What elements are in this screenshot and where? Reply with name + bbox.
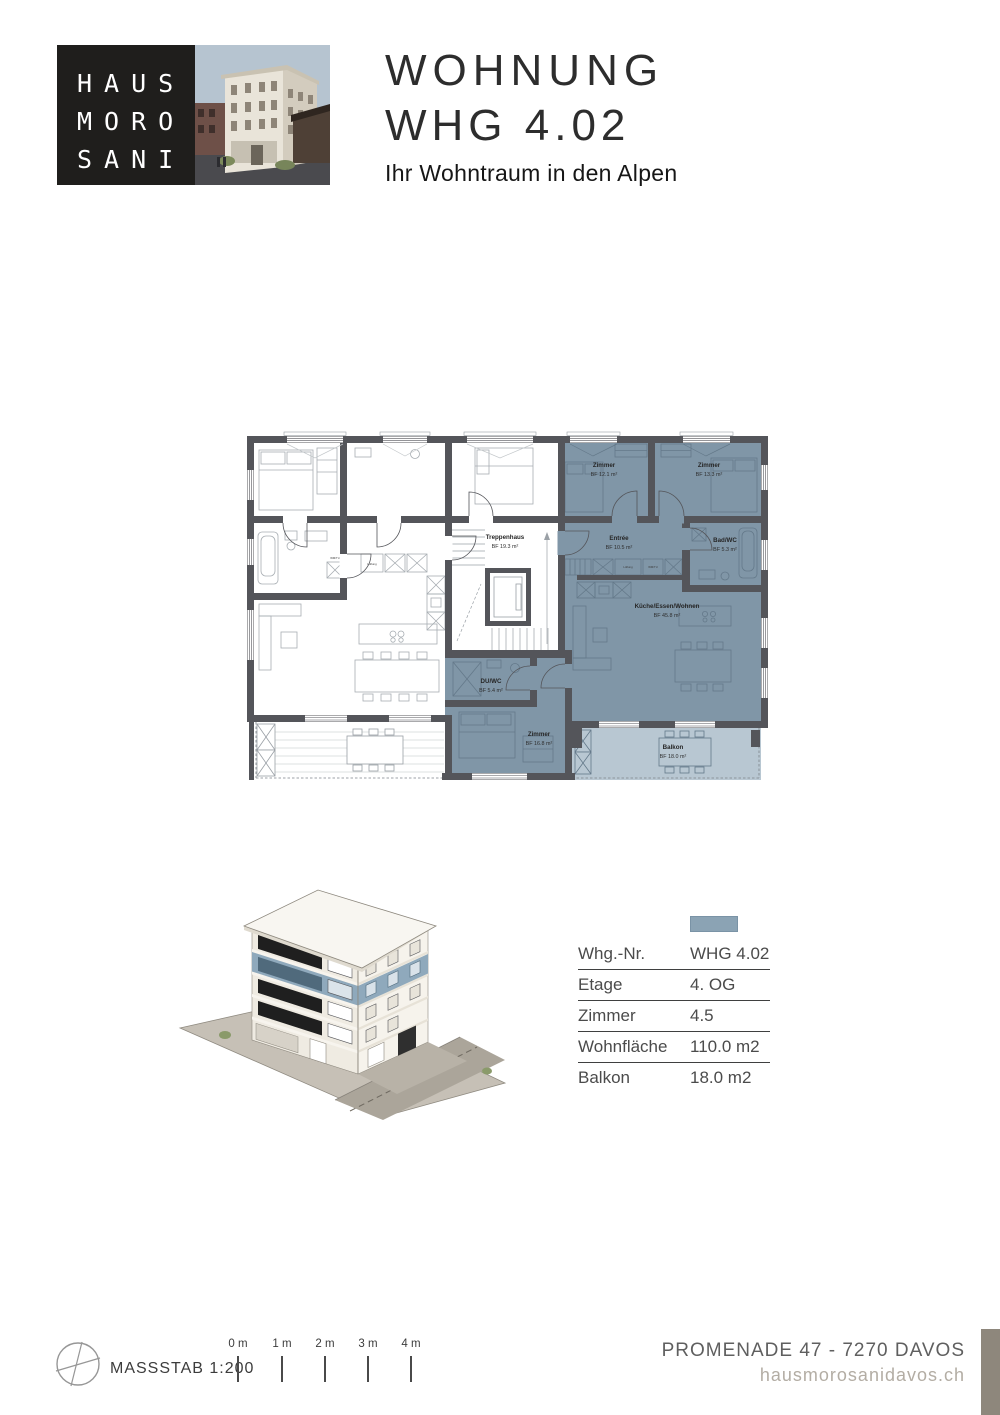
table-row: Zimmer 4.5 <box>578 1001 770 1032</box>
room-label-treppenhaus: Treppenhaus <box>486 534 525 541</box>
floor-plan: Lüftung WM/TU <box>247 430 770 788</box>
title-line-1: WOHNUNG <box>385 44 678 98</box>
room-label-balkon: Balkon <box>663 744 684 751</box>
scale-tick-label: 3 m <box>348 1338 388 1350</box>
row-value: 110.0 m2 <box>690 1037 770 1057</box>
row-label: Balkon <box>578 1068 690 1088</box>
title-subtitle: Ihr Wohntraum in den Alpen <box>385 160 678 187</box>
logo-line-2: MORO <box>77 103 195 141</box>
scale-tick <box>410 1356 412 1382</box>
building-photo <box>195 45 330 185</box>
table-row: Whg.-Nr. WHG 4.02 <box>578 939 770 970</box>
table-row: Wohnfläche 110.0 m2 <box>578 1032 770 1063</box>
table-row: Etage 4. OG <box>578 970 770 1001</box>
compass-icon <box>52 1338 104 1390</box>
room-label-zimmer-3: Zimmer <box>528 731 551 738</box>
scale-tick <box>281 1356 283 1382</box>
website-url: hausmorosanidavos.ch <box>662 1365 965 1386</box>
room-label-kueche: Küche/Essen/Wohnen <box>635 603 700 610</box>
logo-line-1: HAUS <box>77 65 195 103</box>
scale-tick <box>237 1356 239 1382</box>
isometric-building <box>165 875 530 1125</box>
svg-text:BF 5.3 m²: BF 5.3 m² <box>713 547 737 553</box>
room-label-badwc: Bad/WC <box>713 537 737 544</box>
svg-text:BF 5.4 m²: BF 5.4 m² <box>479 688 503 694</box>
room-label-zimmer-1: Zimmer <box>593 462 616 469</box>
street-address: PROMENADE 47 - 7270 DAVOS <box>662 1340 965 1362</box>
fixture-label: WM/TU <box>648 565 657 569</box>
room-label-entree: Entrée <box>609 535 629 542</box>
logo: HAUS MORO SANI <box>57 45 195 185</box>
brochure-page: HAUS MORO SANI WOHNUNG WHG 4.02 <box>0 0 1000 1415</box>
svg-text:BF 18.0 m²: BF 18.0 m² <box>660 754 687 760</box>
page-title: WOHNUNG WHG 4.02 Ihr Wohntraum in den Al… <box>385 44 678 187</box>
logo-wordmark: HAUS MORO SANI <box>57 45 195 179</box>
scale-tick <box>324 1356 326 1382</box>
fixture-label: Lüftung <box>623 565 633 569</box>
room-label-duwc: DU/WC <box>481 678 502 685</box>
title-line-2: WHG 4.02 <box>385 98 678 154</box>
svg-text:BF 19.3 m²: BF 19.3 m² <box>492 544 519 550</box>
scale-tick-label: 0 m <box>218 1338 258 1350</box>
row-label: Zimmer <box>578 1006 690 1026</box>
svg-text:BF 12.1 m²: BF 12.1 m² <box>591 472 618 478</box>
row-value: 4.5 <box>690 1006 770 1026</box>
scale-tick <box>367 1356 369 1382</box>
scale-tick-label: 1 m <box>262 1338 302 1350</box>
row-value: WHG 4.02 <box>690 944 770 964</box>
svg-text:BF 16.8 m²: BF 16.8 m² <box>526 741 553 747</box>
scale-tick-label: 2 m <box>305 1338 345 1350</box>
table-row: Balkon 18.0 m2 <box>578 1063 770 1093</box>
svg-text:BF 13.3 m²: BF 13.3 m² <box>696 472 723 478</box>
svg-text:BF 45.8 m²: BF 45.8 m² <box>654 613 681 619</box>
svg-text:BF 10.5 m²: BF 10.5 m² <box>606 545 633 551</box>
fixture-label: WM/TU <box>330 556 339 560</box>
row-label: Etage <box>578 975 690 995</box>
room-label-zimmer-2: Zimmer <box>698 462 721 469</box>
row-label: Whg.-Nr. <box>578 944 690 964</box>
scale-bar: 0 m 1 m 2 m 3 m 4 m <box>216 1338 456 1390</box>
footer-address-block: PROMENADE 47 - 7270 DAVOS hausmorosanida… <box>662 1340 965 1386</box>
scale-tick-label: 4 m <box>391 1338 431 1350</box>
corner-accent-bar <box>981 1329 1000 1415</box>
apartment-info-table: Whg.-Nr. WHG 4.02 Etage 4. OG Zimmer 4.5… <box>578 916 770 1093</box>
logo-line-3: SANI <box>77 141 195 179</box>
row-value: 4. OG <box>690 975 770 995</box>
legend-color-swatch <box>690 916 738 932</box>
row-label: Wohnfläche <box>578 1037 690 1057</box>
row-value: 18.0 m2 <box>690 1068 770 1088</box>
